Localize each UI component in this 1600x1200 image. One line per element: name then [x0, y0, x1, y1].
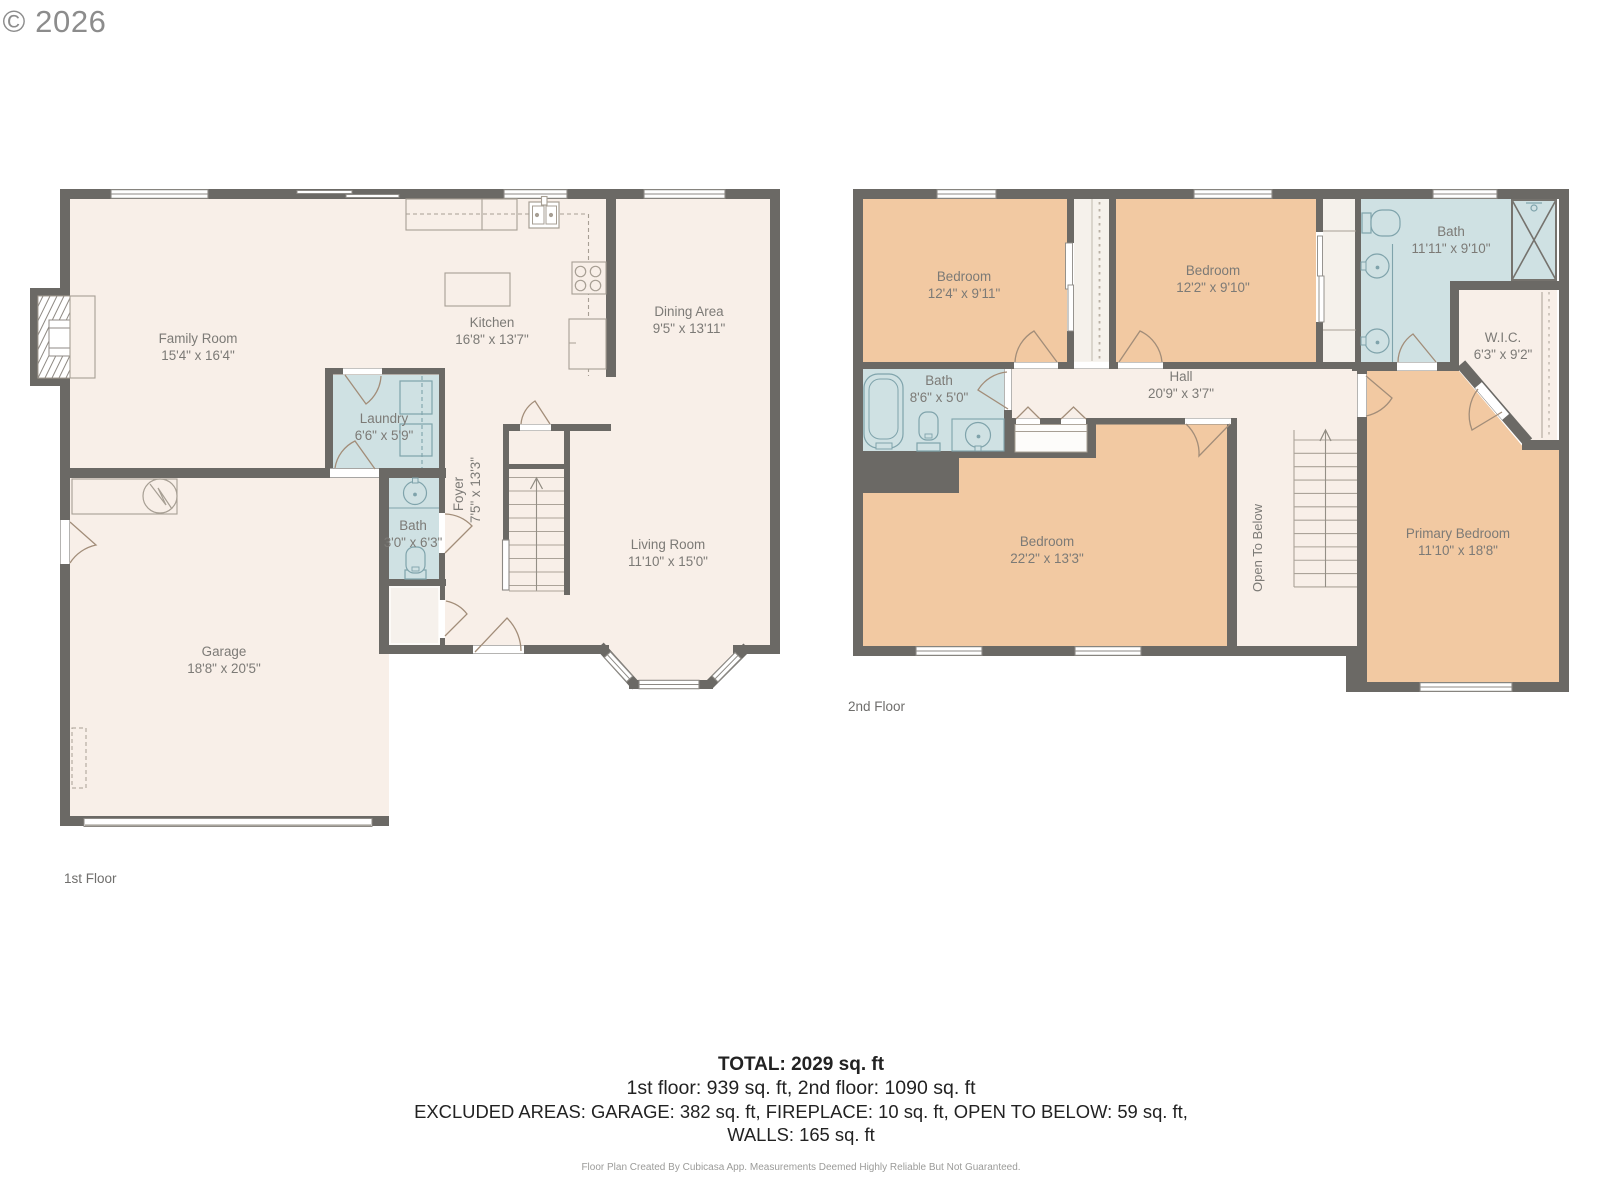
svg-text:11'10" x 18'8": 11'10" x 18'8": [1418, 543, 1498, 558]
svg-text:2nd Floor: 2nd Floor: [848, 699, 906, 714]
svg-text:Bedroom: Bedroom: [1020, 534, 1074, 549]
svg-text:20'9" x 3'7": 20'9" x 3'7": [1148, 386, 1214, 401]
svg-text:Family Room: Family Room: [159, 331, 238, 346]
svg-text:11'10" x 15'0": 11'10" x 15'0": [628, 554, 708, 569]
svg-text:© 2026: © 2026: [3, 4, 107, 39]
svg-text:Bedroom: Bedroom: [937, 269, 991, 284]
svg-text:18'8" x 20'5": 18'8" x 20'5": [187, 661, 261, 676]
svg-text:Dining Area: Dining Area: [654, 304, 724, 319]
svg-text:9'5" x 13'11": 9'5" x 13'11": [653, 321, 726, 336]
svg-text:1st floor: 939 sq. ft, 2nd flo: 1st floor: 939 sq. ft, 2nd floor: 1090 s…: [626, 1077, 976, 1099]
svg-text:Primary Bedroom: Primary Bedroom: [1406, 526, 1510, 541]
svg-text:11'11" x 9'10": 11'11" x 9'10": [1412, 241, 1491, 256]
svg-text:TOTAL: 2029 sq. ft: TOTAL: 2029 sq. ft: [718, 1054, 885, 1075]
svg-text:Bath: Bath: [925, 373, 953, 388]
svg-text:Laundry: Laundry: [360, 411, 409, 426]
svg-text:15'4" x 16'4": 15'4" x 16'4": [161, 348, 235, 363]
svg-text:1st Floor: 1st Floor: [64, 871, 117, 886]
svg-text:Living Room: Living Room: [631, 537, 705, 552]
svg-text:16'8" x 13'7": 16'8" x 13'7": [455, 332, 529, 347]
svg-text:W.I.C.: W.I.C.: [1485, 330, 1521, 345]
svg-text:22'2" x 13'3": 22'2" x 13'3": [1010, 551, 1084, 566]
svg-text:Floor Plan Created By Cubicasa: Floor Plan Created By Cubicasa App. Meas…: [581, 1162, 1020, 1173]
svg-text:8'6" x 5'0": 8'6" x 5'0": [910, 390, 969, 405]
svg-text:Bath: Bath: [1437, 224, 1465, 239]
svg-text:Foyer: Foyer: [451, 476, 466, 511]
svg-text:EXCLUDED AREAS: GARAGE: 382 sq: EXCLUDED AREAS: GARAGE: 382 sq. ft, FIRE…: [414, 1101, 1188, 1122]
svg-text:Bath: Bath: [399, 518, 427, 533]
svg-text:6'6" x 5'9": 6'6" x 5'9": [355, 428, 414, 443]
svg-text:Open To Below: Open To Below: [1250, 503, 1265, 592]
svg-text:Kitchen: Kitchen: [470, 315, 515, 330]
svg-text:WALLS: 165 sq. ft: WALLS: 165 sq. ft: [727, 1124, 875, 1145]
svg-text:12'4" x 9'11": 12'4" x 9'11": [928, 286, 1001, 301]
svg-text:12'2" x 9'10": 12'2" x 9'10": [1176, 280, 1250, 295]
svg-text:7'5" x 13'3": 7'5" x 13'3": [468, 457, 483, 523]
svg-text:Garage: Garage: [202, 644, 247, 659]
svg-text:3'0" x 6'3": 3'0" x 6'3": [384, 535, 443, 550]
svg-text:Hall: Hall: [1169, 369, 1192, 384]
svg-text:Bedroom: Bedroom: [1186, 263, 1240, 278]
svg-text:6'3" x 9'2": 6'3" x 9'2": [1474, 347, 1533, 362]
